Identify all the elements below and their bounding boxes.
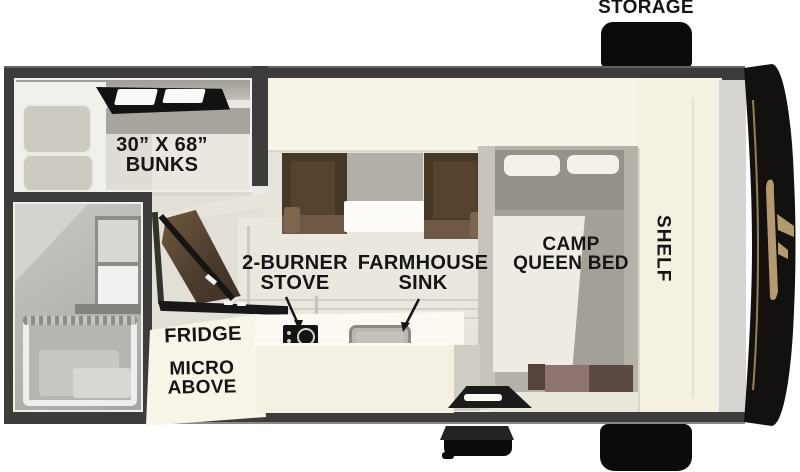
stove-knob xyxy=(287,331,291,335)
dinette-table xyxy=(344,201,426,232)
sink-label: FARMHOUSE SINK xyxy=(356,253,490,294)
bunks-label-line2: BUNKS xyxy=(92,155,232,175)
stove-label: 2-BURNER STOVE xyxy=(235,253,355,294)
bunks-label: 30” X 68” BUNKS xyxy=(92,135,232,176)
step-top xyxy=(440,426,514,440)
foot-cushion xyxy=(589,365,633,394)
skylight-pane xyxy=(114,89,158,105)
bathroom-window xyxy=(95,216,141,308)
foot-cushion xyxy=(528,364,545,390)
fridge-label: FRIDGE xyxy=(158,323,249,347)
bed-label-line2: QUEEN BED xyxy=(496,254,646,273)
kitchen-counter-front-face xyxy=(256,343,454,413)
bunk-cushion xyxy=(22,154,94,192)
shelf-label: SHELF xyxy=(628,213,698,285)
stove-label-line2: STOVE xyxy=(235,273,355,293)
bunks-label-line1: 30” X 68” xyxy=(92,135,232,155)
storage-compartment xyxy=(601,22,692,68)
step-front xyxy=(444,440,512,456)
dinette-bench-left xyxy=(282,153,347,234)
shower-curtain xyxy=(23,316,137,325)
entry-step xyxy=(440,426,516,460)
sink-label-line1: FARMHOUSE xyxy=(356,253,490,273)
bed-label-line1: CAMP xyxy=(496,235,646,254)
bench-pad xyxy=(284,207,300,233)
tub-step xyxy=(73,368,131,398)
bathroom-sill xyxy=(75,304,141,314)
micro-label-line2: ABOVE xyxy=(157,378,247,399)
window-pane xyxy=(98,266,138,304)
exterior-storage-box xyxy=(600,424,692,471)
bed-pillow xyxy=(504,155,560,176)
skylight-pane xyxy=(162,89,205,103)
camper-nose xyxy=(726,60,800,430)
floorplan-canvas: STORAGE xyxy=(0,0,800,472)
window-pane xyxy=(98,220,138,262)
bathroom xyxy=(13,202,143,412)
bed-label: CAMP QUEEN BED xyxy=(496,235,646,274)
bunkroom-wall-cap xyxy=(252,186,268,195)
bed-pillow xyxy=(567,155,619,174)
bench-cushion xyxy=(433,161,477,219)
foot-cushion xyxy=(545,365,590,394)
bunk-cushion xyxy=(22,104,92,154)
drawer-handle xyxy=(237,302,246,306)
shelf-label-text: SHELF xyxy=(653,215,672,282)
micro-label: MICRO ABOVE xyxy=(157,358,248,398)
stove-label-line1: 2-BURNER xyxy=(235,253,355,273)
step-foot xyxy=(442,452,454,459)
sink-label-line2: SINK xyxy=(356,273,490,293)
entry-mat-slot xyxy=(464,394,502,401)
dinette-window-panel xyxy=(347,153,423,201)
storage-label: STORAGE xyxy=(566,0,726,17)
shower-tub xyxy=(23,318,137,406)
drawer-handle xyxy=(224,301,233,305)
bunkroom-wall xyxy=(252,66,268,188)
